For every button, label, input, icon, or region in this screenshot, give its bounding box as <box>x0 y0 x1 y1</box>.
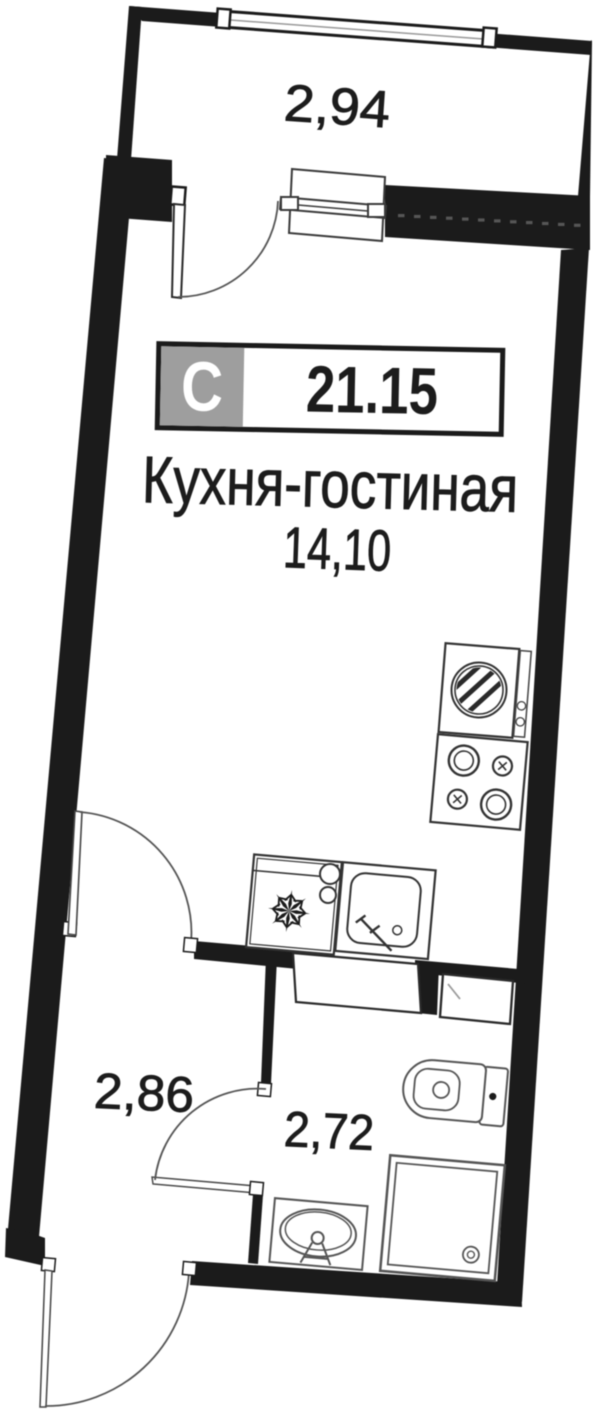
svg-text:С: С <box>180 347 223 426</box>
svg-text:14,10: 14,10 <box>282 515 392 584</box>
svg-text:Кухня-гостиная: Кухня-гостиная <box>141 442 519 526</box>
svg-text:2,72: 2,72 <box>283 1101 375 1161</box>
svg-text:21.15: 21.15 <box>305 352 438 429</box>
svg-text:2,86: 2,86 <box>93 1063 195 1123</box>
svg-text:2,94: 2,94 <box>282 74 392 139</box>
